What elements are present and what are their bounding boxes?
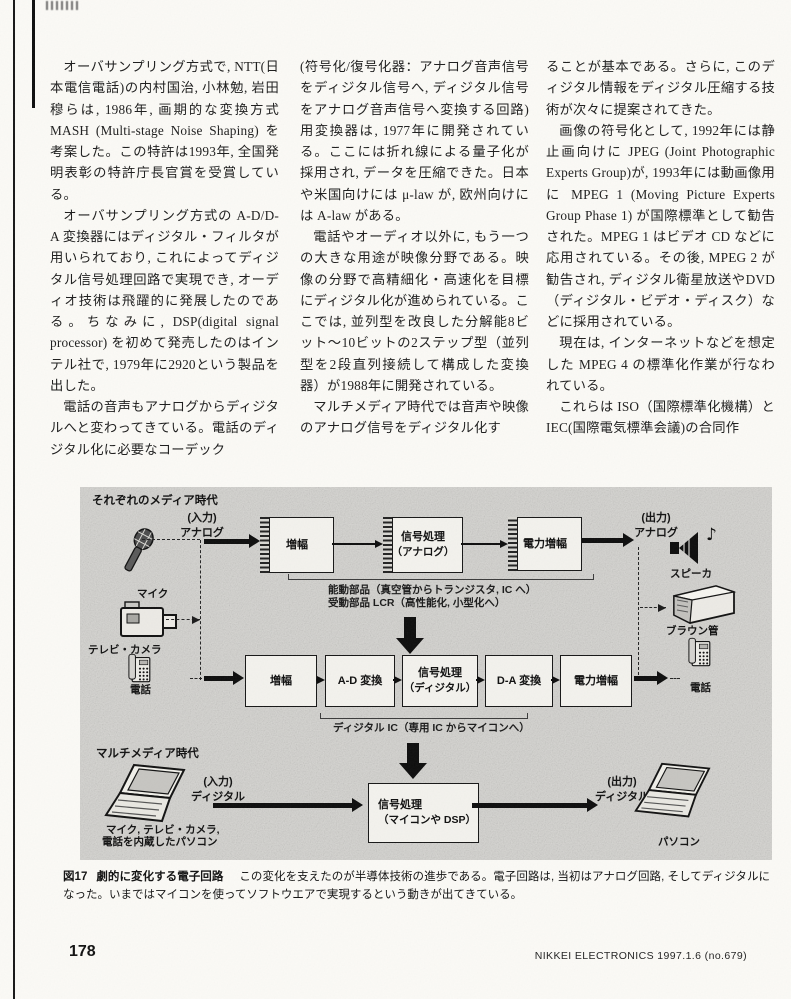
paragraph: (符号化/復号化器：アナログ音声信号をディジタル信号へ, ディジタル信号をアナロ… <box>300 56 529 226</box>
box-amplify-analog: 増幅 <box>260 517 334 573</box>
mic-connector-line <box>142 539 200 540</box>
edge-smudge <box>46 1 80 10</box>
digital-ic-note: ディジタル IC（専用 IC からマイコンへ） <box>333 723 530 735</box>
input-digital-label: (入力) ディジタル <box>180 775 256 805</box>
paragraph: オーバサンプリング方式の A-D/D-A 変換器にはディジタル・フィルタが用いら… <box>50 205 279 396</box>
tv-camera-icon <box>118 599 186 643</box>
box-ad-converter: A-D 変換 <box>325 655 395 707</box>
phone-connector-line <box>190 678 202 679</box>
article-column-3: ることが基本である。さらに, このディジタル情報をディジタル圧縮する技術が次々に… <box>546 56 775 439</box>
paragraph: オーバサンプリング方式で, NTT(日本電信電話)の内村国治, 小林勉, 岩田穆… <box>50 56 279 205</box>
paragraph: これらは ISO（国際標準化機構）と IEC(国際電気標準会議)の合同作 <box>546 396 775 439</box>
article-column-1: オーバサンプリング方式で, NTT(日本電信電話)の内村国治, 小林勉, 岩田穆… <box>50 56 279 460</box>
laptop-left-label-1: マイク, テレビ・カメラ, <box>106 825 220 837</box>
box-power-amplify-digital: 電力増幅 <box>560 655 632 707</box>
figure-caption: 図17劇的に変化する電子回路この変化を支えたのが半導体技術の進歩である。電子回路… <box>63 869 770 904</box>
laptop-left-label-2: 電話を内蔵したパソコン <box>102 837 218 849</box>
box-power-amplify-analog: 電力増幅 <box>508 517 582 571</box>
page-number: 178 <box>69 943 96 961</box>
phone-right-icon <box>680 637 720 667</box>
analog-row-brace <box>288 574 594 580</box>
phone-left-icon <box>120 653 160 683</box>
box-signal-processing-dsp: 信号処理 （マイコンや DSP） <box>368 783 479 843</box>
paragraph: マルチメディア時代では音声や映像のアナログ信号をディジタル化す <box>300 396 529 439</box>
active-components-note: 能動部品（真空管からトランジスタ, IC へ） <box>328 585 536 597</box>
crt-icon <box>668 581 740 625</box>
input-bus-line <box>200 540 201 680</box>
binding-edge-line <box>13 0 15 999</box>
box-signal-processing-analog: 信号処理 （アナログ） <box>383 517 463 573</box>
paragraph: 画像の符号化として, 1992年には静止画向けに JPEG (Joint Pho… <box>546 120 775 333</box>
era-transition-arrow-1 <box>396 617 424 654</box>
box-amplify-digital: 増幅 <box>245 655 317 707</box>
hatch-edge <box>508 517 518 571</box>
passive-components-note: 受動部品 LCR（高性能化, 小型化へ） <box>328 598 505 610</box>
box-signal-processing-digital: 信号処理 （ディジタル） <box>402 655 478 707</box>
speaker-label: スピーカ <box>670 569 712 581</box>
caption-number: 図17 <box>63 871 87 883</box>
output-bus-line <box>638 547 639 680</box>
paragraph: 電話やオーディオ以外に, もう一つの大きな用途が映像分野である。映像の分野で高精… <box>300 226 529 396</box>
hatch-edge <box>260 517 270 573</box>
phone-left-label: 電話 <box>130 685 151 697</box>
magazine-page: { "article": { "col1": { "p1": "オーバサンプリン… <box>0 0 791 999</box>
laptop-right-icon <box>632 761 726 823</box>
figure-17-diagram: それぞれのメディア時代 マルチメディア時代 (入力) アナログ マイク テレビ・… <box>80 487 772 860</box>
caption-title: 劇的に変化する電子回路 <box>96 871 223 883</box>
paragraph: ることが基本である。さらに, このディジタル情報をディジタル圧縮する技術が次々に… <box>546 56 775 120</box>
paragraph: 現在は, インターネットなどを想定した MPEG 4 の標準化作業が行なわれてい… <box>546 332 775 396</box>
era-transition-arrow-2 <box>399 743 427 779</box>
era2-label: マルチメディア時代 <box>96 748 199 762</box>
digital-row-brace <box>320 713 528 719</box>
phone-right-label: 電話 <box>690 683 711 695</box>
binding-edge-mark <box>32 0 35 108</box>
speaker-icon <box>668 529 706 567</box>
digital-output-dash <box>670 678 680 679</box>
article-column-2: (符号化/復号化器：アナログ音声信号をディジタル信号へ, ディジタル信号をアナロ… <box>300 56 529 439</box>
hatch-edge <box>383 517 393 573</box>
pc-label: パソコン <box>658 837 700 849</box>
box-da-converter: D-A 変換 <box>485 655 553 707</box>
paragraph: 電話の音声もアナログからディジタルへと変わってきている。電話のディジタル化に必要… <box>50 396 279 460</box>
era1-label: それぞれのメディア時代 <box>92 495 218 509</box>
music-note-icon: ♪ <box>706 525 717 545</box>
microphone-icon <box>125 527 177 587</box>
journal-name: NIKKEI ELECTRONICS 1997.1.6 (no.679) <box>535 950 747 962</box>
crt-label: ブラウン管 <box>666 626 719 638</box>
